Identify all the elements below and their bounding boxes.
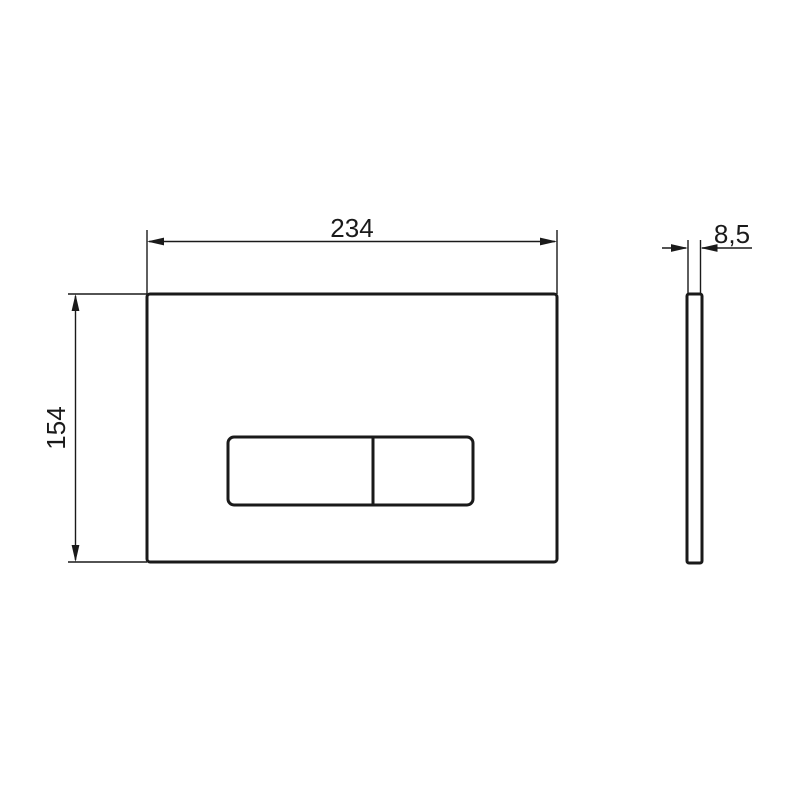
side-plate-outline xyxy=(687,294,702,563)
front-view xyxy=(147,294,557,562)
width-dimension: 234 xyxy=(147,213,557,294)
width-arrowhead-left xyxy=(147,238,164,246)
width-arrowhead-right xyxy=(540,238,557,246)
thickness-arrowhead-left xyxy=(671,244,688,252)
thickness-dimension-label: 8,5 xyxy=(714,219,750,249)
height-arrowhead-bottom xyxy=(72,545,80,562)
height-arrowhead-top xyxy=(72,294,80,311)
flush-button-panel-outline xyxy=(228,437,473,505)
height-dimension: 154 xyxy=(41,294,147,562)
front-plate-outline xyxy=(147,294,557,562)
flush-plate-dimension-drawing: 234 154 8,5 xyxy=(0,0,800,800)
width-dimension-label: 234 xyxy=(330,213,373,243)
thickness-dimension: 8,5 xyxy=(662,219,752,294)
technical-drawing-canvas: 234 154 8,5 xyxy=(0,0,800,800)
side-view xyxy=(687,294,702,563)
height-dimension-label: 154 xyxy=(41,406,71,449)
